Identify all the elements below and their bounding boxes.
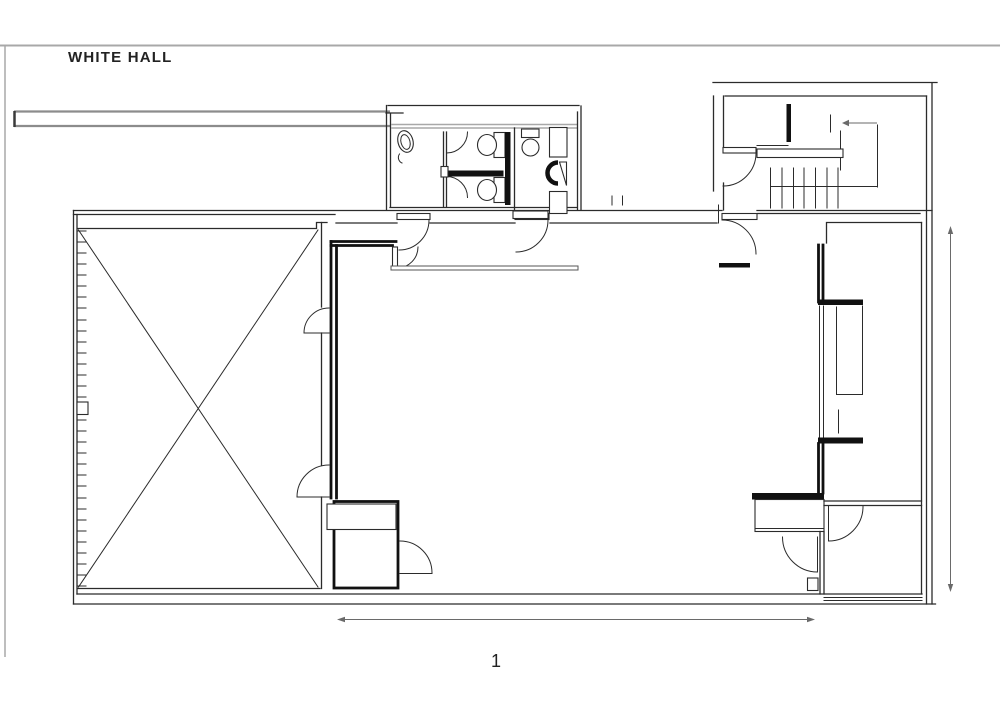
wall-niche-box (77, 402, 88, 415)
pocket-door-panel (837, 306, 863, 433)
kiosk-counter (327, 504, 396, 530)
heavy-partition (505, 132, 511, 205)
stair-door-leaf (722, 214, 757, 220)
wc-shelf (522, 129, 540, 138)
stair-door-arc (723, 153, 756, 186)
cabinet-icon (550, 128, 568, 158)
urinal-partition (560, 162, 567, 186)
door-arc-upper (304, 308, 329, 333)
cabinet-icon (550, 192, 568, 214)
bathrooms (386, 106, 581, 219)
page-title: WHITE HALL (68, 49, 172, 66)
corner-door-leaf (393, 247, 398, 268)
heavy-wall-stub (818, 438, 863, 444)
stair-door-leaf (723, 148, 756, 154)
toilet-icon (478, 135, 497, 156)
stall-door-arc (447, 132, 468, 153)
canopy-wall-bar (14, 111, 390, 127)
hall-west-heavy-wall (327, 242, 432, 589)
stall-door-arc (447, 177, 468, 198)
kiosk-door-arc (400, 541, 432, 574)
stair-door-arc (722, 220, 756, 254)
sink-oval-icon (395, 129, 415, 154)
heavy-wall-post (787, 104, 792, 142)
staircase-treads-icon (771, 168, 839, 208)
door-arc-lower (297, 465, 329, 497)
threshold (513, 211, 548, 219)
dimensions (337, 226, 953, 622)
door-leaf (397, 214, 430, 220)
toilet-icon (478, 180, 497, 201)
north-wall-doors (391, 214, 757, 271)
urinal-icon (548, 163, 559, 184)
door-arc (516, 220, 548, 252)
heavy-wall-stub (818, 300, 863, 306)
heavy-wall-dash (719, 263, 750, 268)
stall-divider-wall (447, 171, 504, 177)
wc-basin-icon (522, 139, 539, 156)
floor-plan-drawing (0, 0, 1000, 707)
stair-landing (757, 149, 843, 158)
drawing-sheet: WHITE HALL 1 (0, 0, 1000, 707)
vestibule-closet (755, 500, 824, 532)
heavy-wall-cap (752, 493, 824, 500)
x-braced-area (77, 223, 329, 589)
door-arc (399, 220, 429, 250)
east-rooms (752, 223, 922, 595)
sheet-number-label: 1 (491, 651, 501, 672)
x-brace-diagonals (79, 230, 319, 587)
door-arc (783, 537, 818, 572)
ledge-strip (391, 266, 578, 270)
staircase (713, 83, 937, 211)
door-arc (829, 506, 864, 541)
wall-box (808, 578, 819, 591)
